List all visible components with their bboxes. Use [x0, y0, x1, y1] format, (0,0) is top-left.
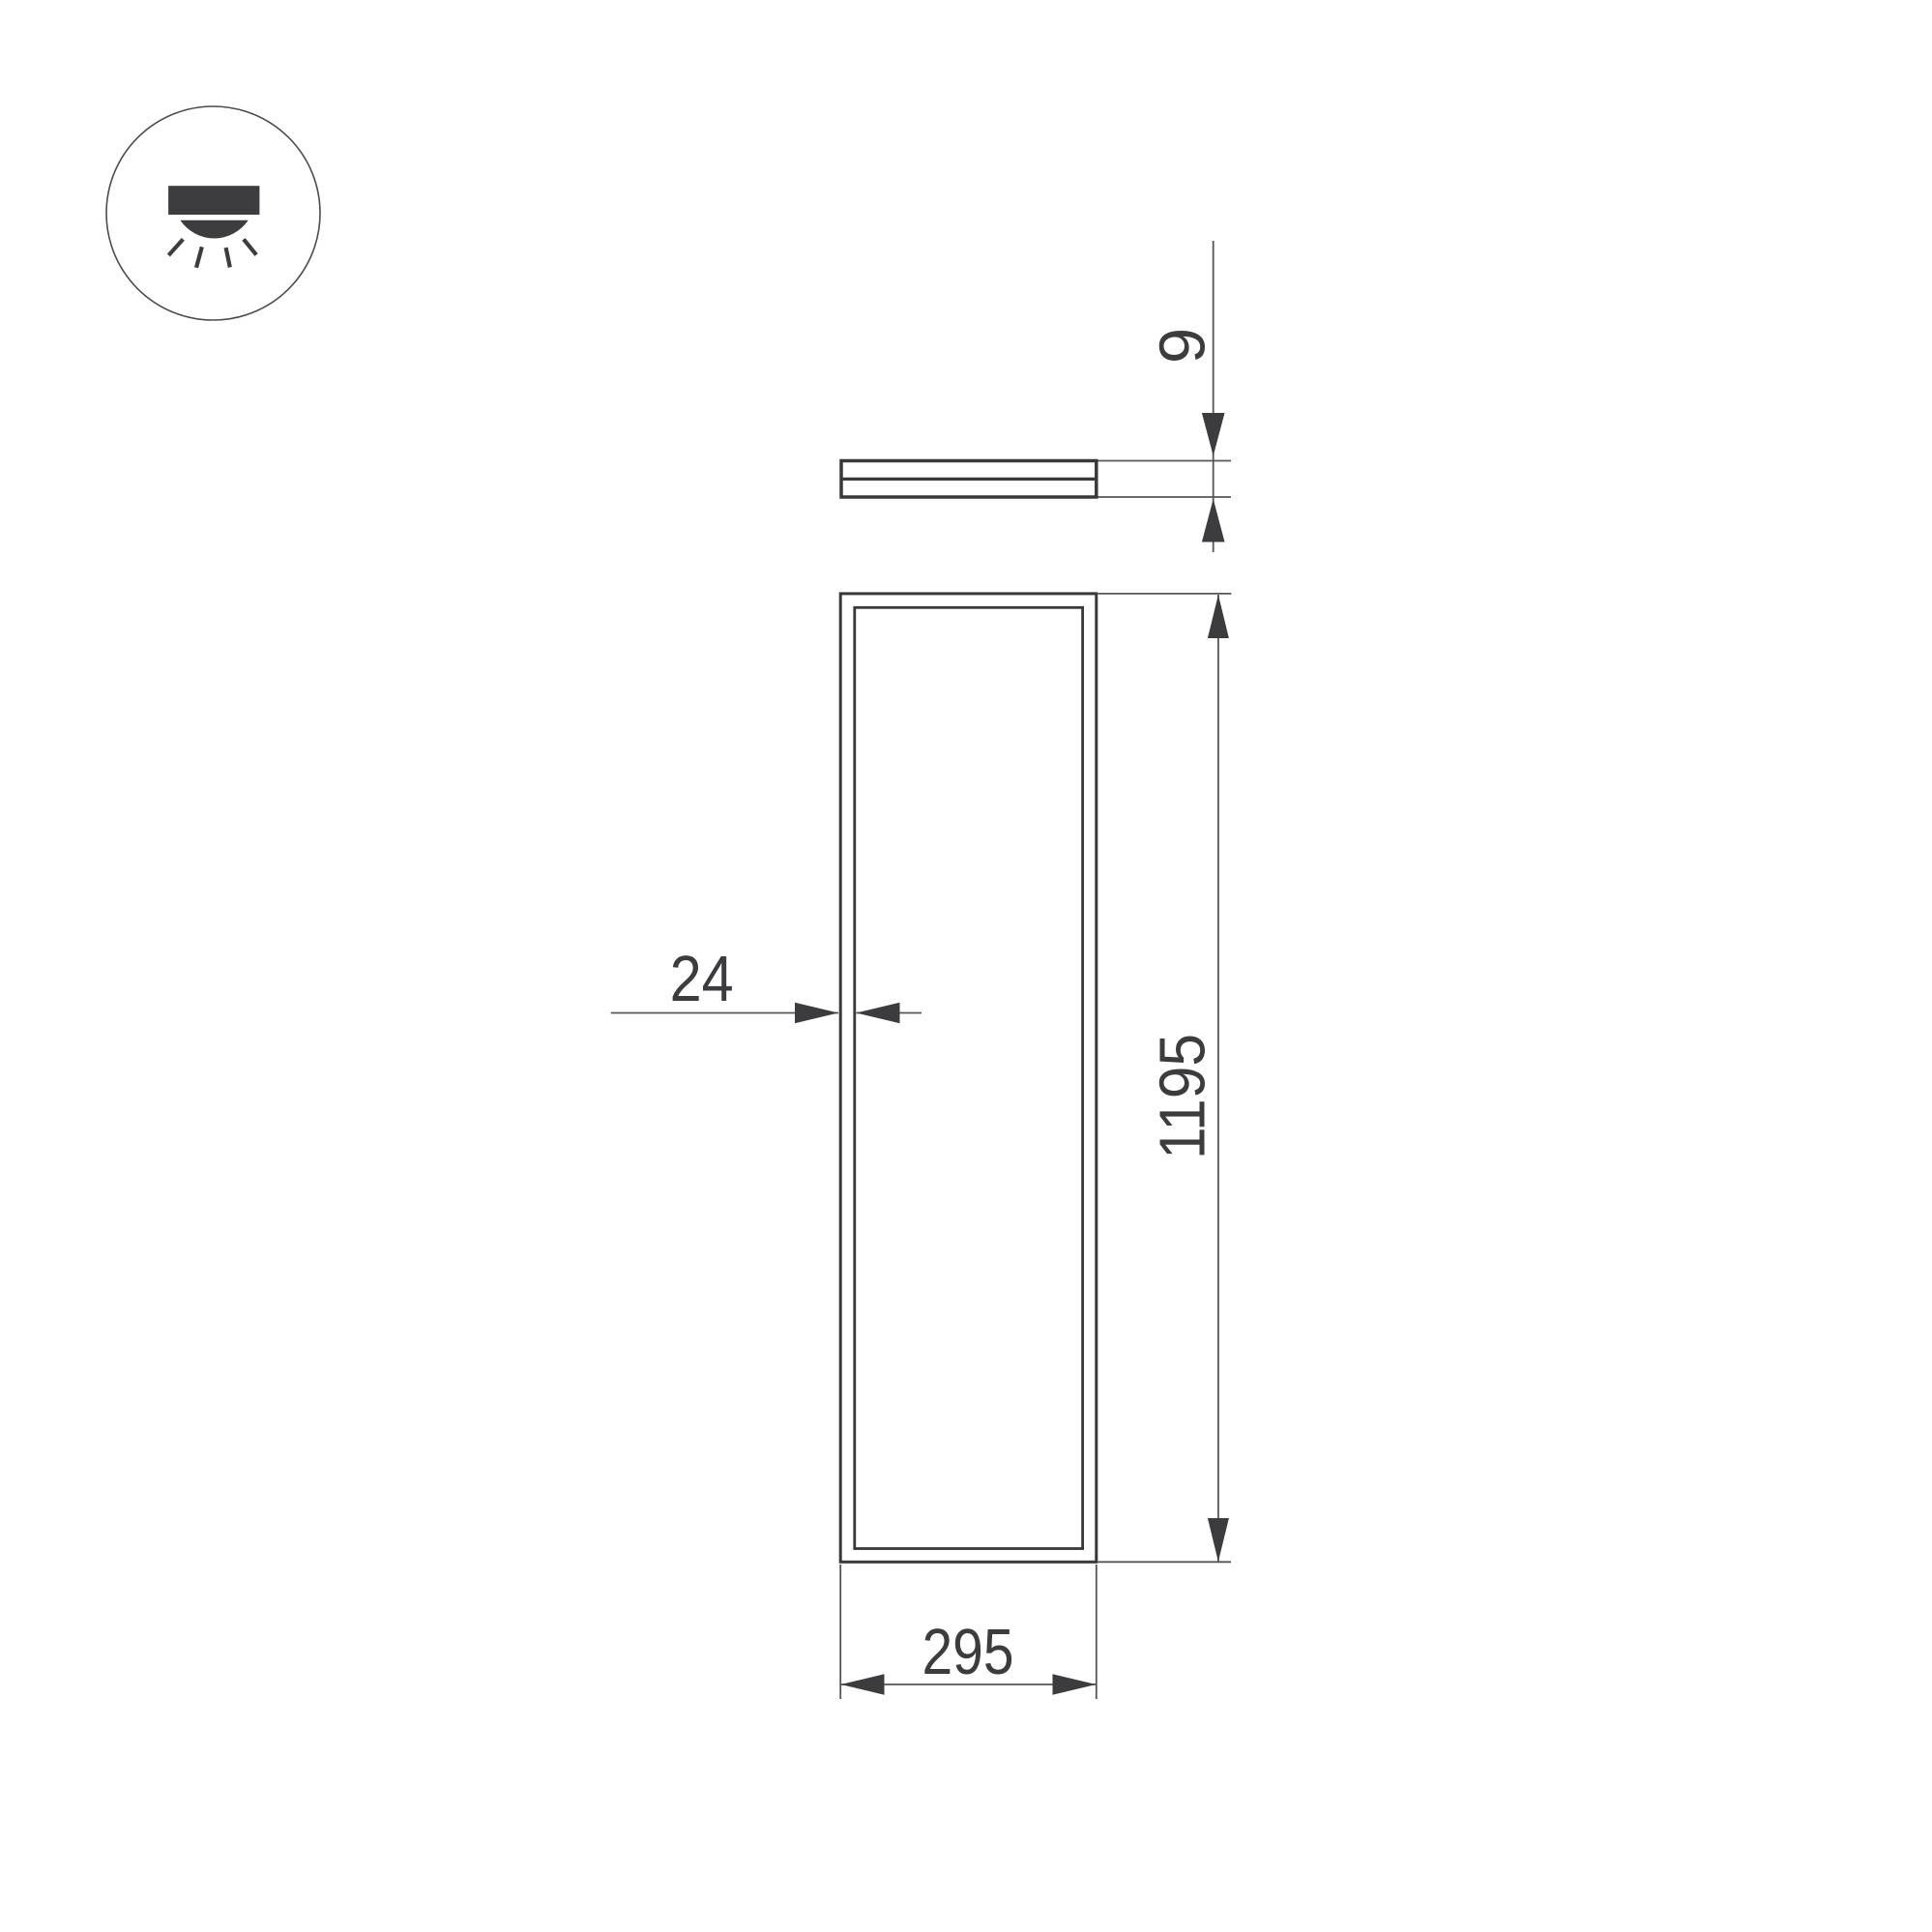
svg-text:295: 295	[922, 1616, 1014, 1688]
svg-text:1195: 1195	[1147, 1034, 1219, 1159]
svg-text:9: 9	[1147, 328, 1219, 364]
svg-text:24: 24	[670, 943, 734, 1015]
